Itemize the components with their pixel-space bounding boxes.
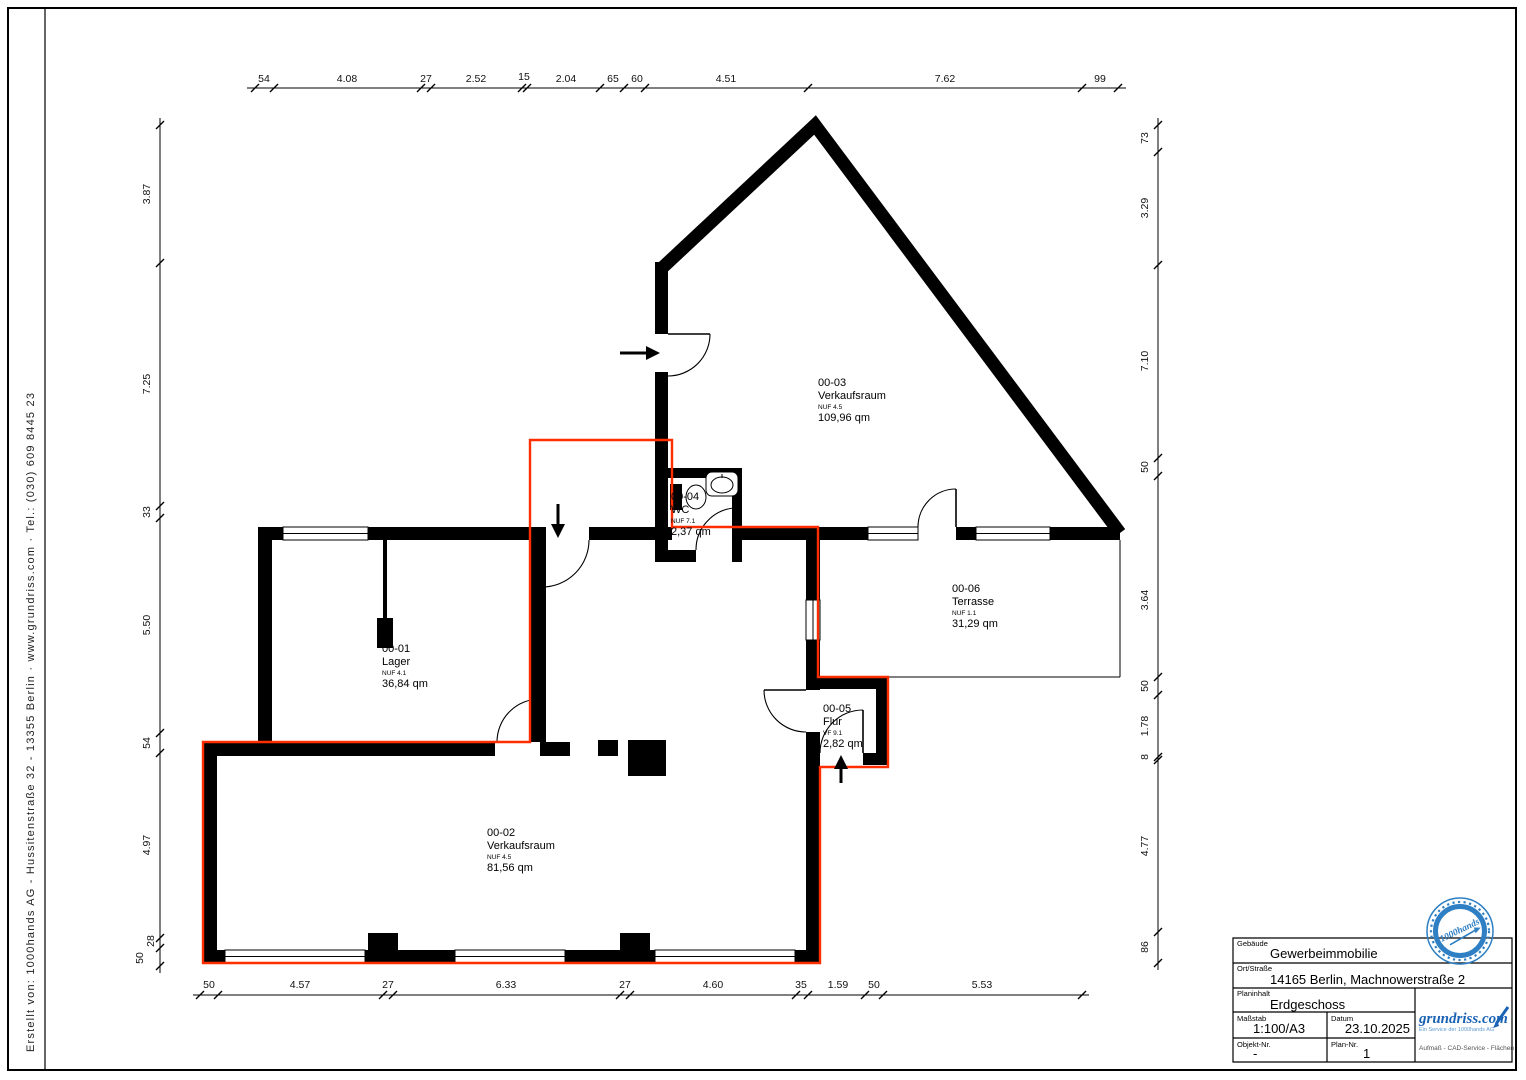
door-entrance-center: [542, 540, 589, 587]
dim-label: 35: [795, 979, 807, 991]
room-label-verkaufsraum-2: 00-02 Verkaufsraum NUF 4.5 81,56 qm: [487, 827, 555, 874]
dim-label: 4.77: [1139, 836, 1151, 857]
window: [225, 950, 365, 963]
room-name: Verkaufsraum: [818, 390, 886, 402]
room-classification: VF 9.1: [823, 730, 843, 737]
dimension-chain-right: 73 3.29 7.10 50 3.64 50 1.78 8 4.77 86: [1139, 118, 1162, 970]
room-id: 00-02: [487, 827, 515, 839]
room-classification: NUF 4.1: [382, 670, 407, 677]
door-terrace: [918, 489, 956, 527]
room-area: 36,84 qm: [382, 678, 428, 690]
field-label-plannr: Plan-Nr.: [1331, 1040, 1358, 1049]
dim-label: 5.53: [972, 979, 993, 991]
field-value-datum: 23.10.2025: [1345, 1021, 1410, 1036]
walls: [203, 125, 1120, 963]
room-id: 00-04: [671, 491, 699, 503]
brand-services: Aufmaß - CAD-Service - Flächen: [1419, 1045, 1514, 1052]
room-label-verkaufsraum-3: 00-03 Verkaufsraum NUF 4.5 109,96 qm: [818, 377, 886, 424]
room-classification: NUF 7.1: [671, 518, 696, 525]
room-name: Lager: [382, 656, 410, 668]
dim-label: 54: [258, 73, 270, 85]
dimension-chain-bottom: 50 4.57 27 6.33 27 4.60 35 1.59 50 5.53: [193, 979, 1089, 999]
brand-wordmark: grundriss.com: [1418, 1011, 1508, 1027]
entrance-arrow-left: [620, 346, 660, 360]
room-area: 31,29 qm: [952, 618, 998, 630]
dim-label: 4.57: [290, 979, 311, 991]
room-area: 81,56 qm: [487, 862, 533, 874]
floor-plan-canvas: Erstellt von: 1000hands AG - Hussitenstr…: [0, 0, 1526, 1080]
room-name: WC: [671, 504, 689, 516]
sink-basin: [711, 477, 733, 493]
entrance-arrows: [551, 346, 848, 783]
dim-label: 27: [382, 979, 394, 991]
entrance-arrow-flur: [834, 755, 848, 783]
dim-label: 99: [1094, 73, 1106, 85]
dim-label: 7.25: [141, 374, 153, 395]
dim-label: 2.04: [556, 73, 577, 85]
brand-tagline: Ein Service der 1000hands AG: [1419, 1027, 1494, 1033]
plan-sheet: Erstellt von: 1000hands AG - Hussitenstr…: [0, 0, 1526, 1080]
dim-label: 4.60: [703, 979, 724, 991]
entrance-arrow-center: [551, 504, 565, 538]
room-area: 109,96 qm: [818, 412, 870, 424]
dim-label: 7.10: [1139, 351, 1151, 372]
field-label-planinhalt: Planinhalt: [1237, 989, 1271, 998]
room-labels: 00-01 Lager NUF 4.1 36,84 qm 00-02 Verka…: [382, 377, 998, 874]
dim-label: 15: [518, 71, 530, 83]
room-area: 2,37 qm: [671, 526, 711, 538]
dim-label: 8: [1139, 754, 1151, 760]
dim-label: 60: [631, 73, 643, 85]
dimension-chain-top: 54 4.08 27 2.52 15 2.04 65 60 4.51 7.62 …: [247, 71, 1126, 92]
dim-label: 4.08: [337, 73, 358, 85]
room-area: 2,82 qm: [823, 738, 863, 750]
dim-label: 50: [134, 952, 146, 964]
window: [655, 950, 795, 963]
room-id: 00-01: [382, 643, 410, 655]
dim-label: 54: [141, 737, 153, 749]
dim-label: 65: [607, 73, 619, 85]
room-classification: NUF 4.5: [818, 404, 843, 411]
field-label-ort: Ort/Straße: [1237, 964, 1272, 973]
window: [283, 527, 368, 540]
dim-label: 1.59: [828, 979, 849, 991]
terrace-outline: [888, 540, 1120, 677]
creator-credit: Erstellt von: 1000hands AG - Hussitenstr…: [25, 392, 37, 1052]
dim-label: 1.78: [1139, 716, 1151, 737]
field-value-planinhalt: Erdgeschoss: [1270, 997, 1346, 1012]
dim-label: 27: [420, 73, 432, 85]
room-name: Verkaufsraum: [487, 840, 555, 852]
dim-label: 50: [1139, 680, 1151, 692]
field-value-objektnr: -: [1253, 1046, 1257, 1061]
room-id: 00-06: [952, 583, 980, 595]
field-label-gebaeude: Gebäude: [1237, 939, 1268, 948]
room-name: Flur: [823, 716, 842, 728]
dim-label: 4.51: [716, 73, 737, 85]
room-id: 00-05: [823, 703, 851, 715]
dim-label: 6.33: [496, 979, 517, 991]
door-flur-verkaufsraum: [764, 690, 806, 732]
grundriss-logo: grundriss.com Ein Service der 1000hands …: [1418, 1007, 1514, 1052]
dim-label: 3.29: [1139, 198, 1151, 219]
dim-label: 5.50: [141, 615, 153, 636]
dim-label: 3.87: [141, 184, 153, 205]
dim-label: 50: [203, 979, 215, 991]
room-label-lager: 00-01 Lager NUF 4.1 36,84 qm: [382, 643, 428, 690]
dim-label: 33: [141, 506, 153, 518]
room-id: 00-03: [818, 377, 846, 389]
dim-label: 4.97: [141, 835, 153, 856]
dim-label: 27: [619, 979, 631, 991]
room-name: Terrasse: [952, 596, 994, 608]
room-classification: NUF 1.1: [952, 610, 977, 617]
field-value-plannr: 1: [1363, 1046, 1370, 1061]
room-label-terrasse: 00-06 Terrasse NUF 1.1 31,29 qm: [952, 583, 998, 630]
window: [868, 527, 918, 540]
dim-label: 73: [1139, 132, 1151, 144]
field-value-gebaeude: Gewerbeimmobilie: [1270, 946, 1378, 961]
dim-label: 50: [1139, 461, 1151, 473]
window: [976, 527, 1050, 540]
dim-label: 86: [1139, 941, 1151, 953]
door-entrance-left: [668, 334, 710, 376]
dim-label: 50: [868, 979, 880, 991]
room-classification: NUF 4.5: [487, 854, 512, 861]
dim-label: 28: [145, 935, 157, 947]
field-value-massstab: 1:100/A3: [1253, 1021, 1305, 1036]
window: [455, 950, 565, 963]
dim-label: 2.52: [466, 73, 487, 85]
dim-label: 7.62: [935, 73, 956, 85]
dimension-chain-left: 3.87 7.25 33 5.50 54 4.97 28 50: [134, 118, 164, 973]
dim-label: 3.64: [1139, 590, 1151, 611]
field-value-ort: 14165 Berlin, Machnowerstraße 2: [1270, 972, 1465, 987]
approval-stamp: 1000hands: [1427, 898, 1493, 964]
title-block: Gebäude Gewerbeimmobilie Ort/Straße 1416…: [1233, 938, 1514, 1062]
